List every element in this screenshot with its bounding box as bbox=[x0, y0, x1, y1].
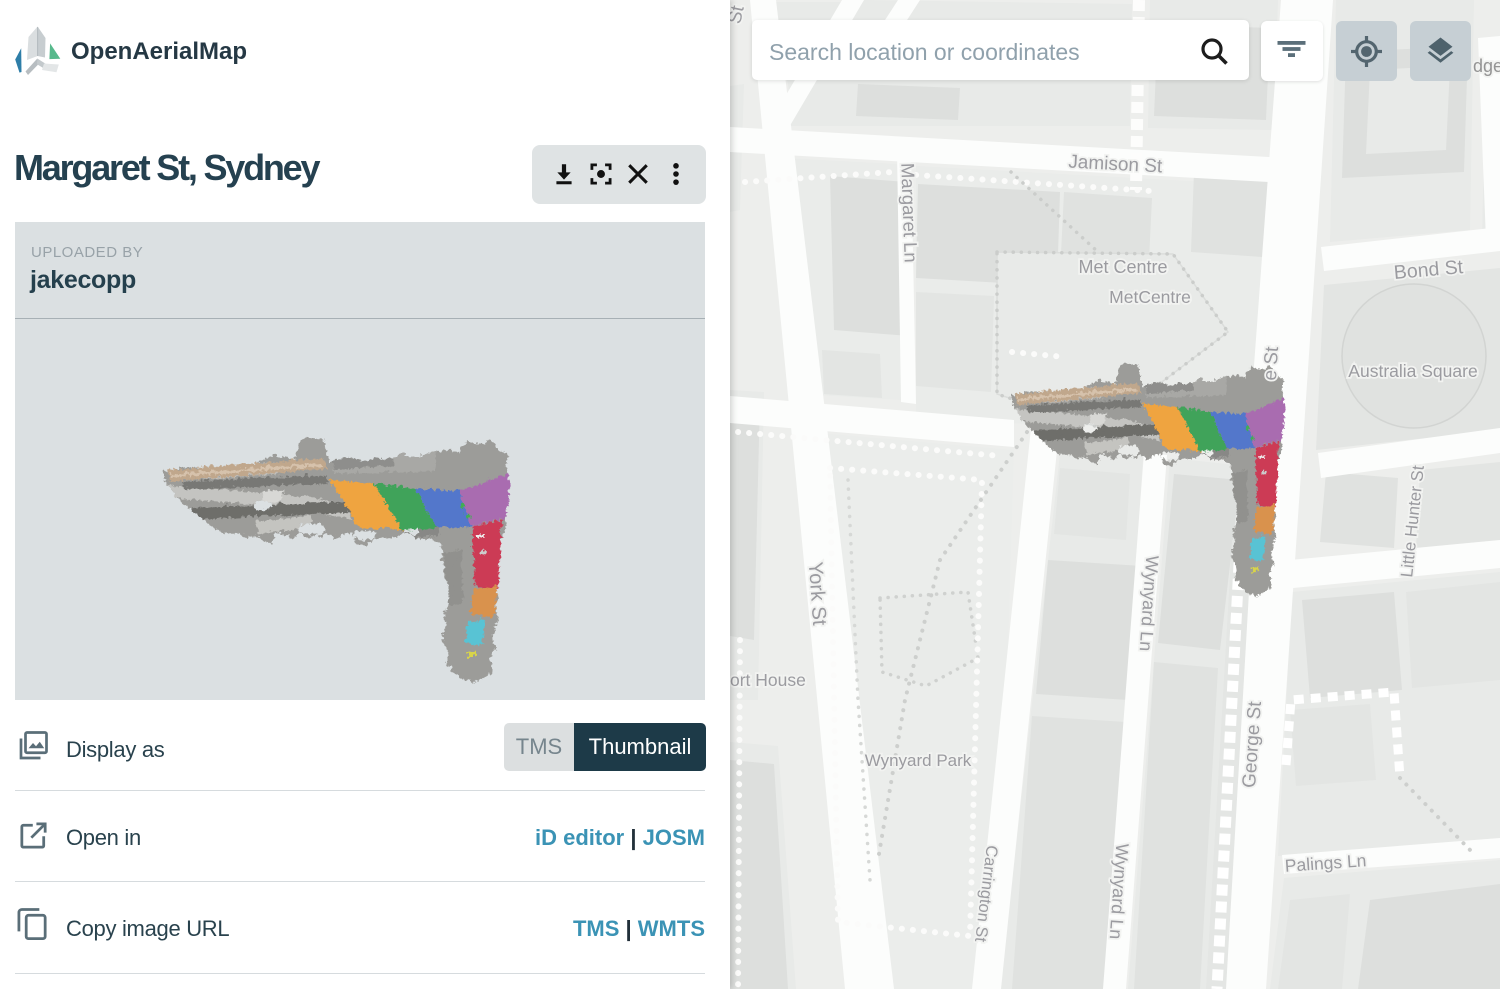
svg-text:Wynyard Park: Wynyard Park bbox=[865, 751, 972, 770]
svg-text:Margaret Ln: Margaret Ln bbox=[897, 163, 921, 263]
svg-text:York St: York St bbox=[804, 561, 830, 627]
svg-text:ort House: ort House bbox=[730, 670, 806, 690]
svg-text:e St: e St bbox=[1260, 345, 1283, 381]
svg-text:Met Centre: Met Centre bbox=[1078, 257, 1167, 277]
svg-text:Australia Square: Australia Square bbox=[1348, 361, 1477, 381]
svg-text:MetCentre: MetCentre bbox=[1109, 287, 1191, 307]
svg-text:dge: dge bbox=[1473, 56, 1500, 76]
